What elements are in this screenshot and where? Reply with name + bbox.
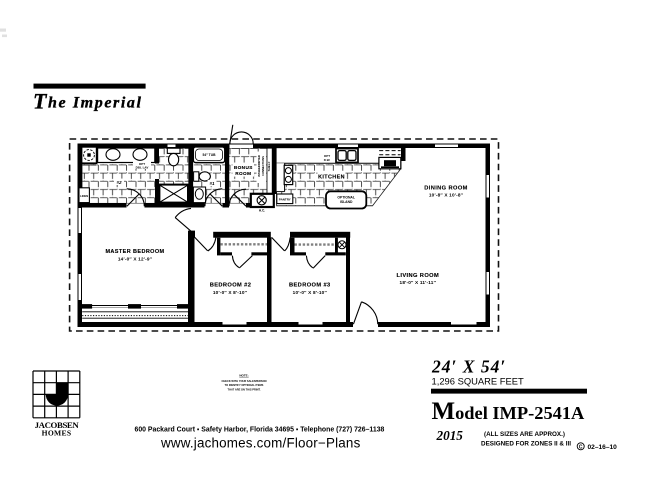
svg-text:MASTER BEDROOM: MASTER BEDROOM [105,249,164,255]
svg-text:THAT ARE ON THIS PRINT.: THAT ARE ON THIS PRINT. [228,387,261,391]
svg-text:DBL LAV: DBL LAV [136,165,149,169]
svg-text:54″ TUB: 54″ TUB [203,153,217,157]
svg-text:1,296 SQUARE FEET: 1,296 SQUARE FEET [432,376,524,387]
svg-text:KITCHEN: KITCHEN [318,175,345,181]
svg-text:Model IMP-2541A: Model IMP-2541A [432,398,586,425]
svg-text:10′-0″ X 8′-10″: 10′-0″ X 8′-10″ [293,290,328,295]
svg-text:NOTE:: NOTE: [239,374,248,378]
svg-text:02–16–10: 02–16–10 [588,444,618,451]
svg-text:#2: #2 [116,180,122,185]
svg-text:BEDROOM #3: BEDROOM #3 [289,283,331,289]
svg-text:LINEN: LINEN [80,194,88,198]
svg-text:#1: #1 [209,181,215,186]
svg-text:14′-0″ X 12′-9″: 14′-0″ X 12′-9″ [118,256,153,261]
svg-text:SHELF: SHELF [267,161,271,171]
svg-text:D.W.: D.W. [324,158,331,162]
svg-text:CHECK WITH YOUR SALESPERSON: CHECK WITH YOUR SALESPERSON [221,379,266,383]
svg-text:ROOM: ROOM [235,171,251,176]
svg-text:A.C.: A.C. [259,208,265,212]
svg-text:10′-8″ X 10′-8″: 10′-8″ X 10′-8″ [429,192,464,197]
svg-text:BEDROOM #2: BEDROOM #2 [210,283,252,289]
svg-text:10′-0″ X 8′-10″: 10′-0″ X 8′-10″ [213,290,248,295]
svg-text:2015: 2015 [436,428,464,443]
svg-text:18′-0″ X 11′-11″: 18′-0″ X 11′-11″ [400,280,437,285]
svg-text:HOMES: HOMES [42,429,72,438]
svg-text:DESIGNED FOR ZONES II & III: DESIGNED FOR ZONES II & III [481,440,571,447]
svg-text:BONUS: BONUS [234,165,253,170]
svg-text:LIVING ROOM: LIVING ROOM [396,273,439,279]
svg-text:DINING ROOM: DINING ROOM [424,185,468,191]
svg-text:REFER: REFER [385,162,397,166]
svg-text:C: C [579,444,583,450]
svg-text:OPTIONAL: OPTIONAL [337,196,355,200]
svg-text:24′ X 54′: 24′ X 54′ [431,357,506,377]
svg-text:TO IDENTIFY OPTIONAL ITEMS: TO IDENTIFY OPTIONAL ITEMS [225,383,264,387]
svg-text:600 Packard Court ▪ Safety H: 600 Packard Court ▪ Safety Harbor, Flori… [135,426,385,433]
svg-text:PANTRY: PANTRY [279,197,291,201]
svg-text:(ALL SIZES ARE APPROX.): (ALL SIZES ARE APPROX.) [484,431,565,438]
svg-text:CONNECTIONS: CONNECTIONS [261,156,265,176]
svg-text:ISLAND: ISLAND [340,200,353,204]
svg-text:WASHER/DRYER: WASHER/DRYER [257,155,261,177]
svg-text:www.jachomes.com/Floor−Plans: www.jachomes.com/Floor−Plans [160,436,361,451]
